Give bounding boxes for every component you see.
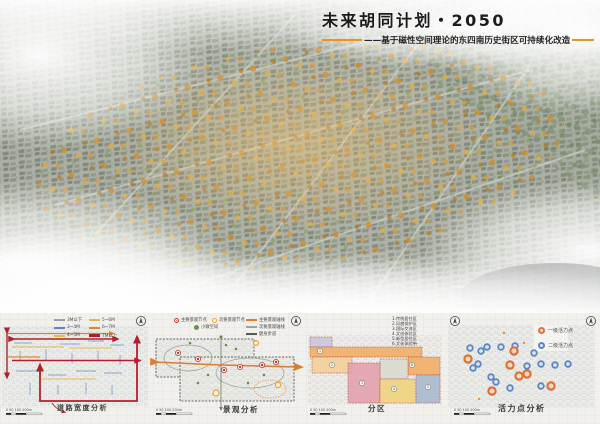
accent-rule-right [572, 39, 594, 41]
svg-text:0 50 100 200m: 0 50 100 200m [6, 408, 33, 412]
legend-main-node: 主要景观节点 [174, 317, 207, 323]
svg-text:0 50 100 200m: 0 50 100 200m [454, 408, 481, 412]
legend-label: 3M以下 [67, 317, 82, 323]
panel-title-vitality: 活力点分析 [498, 403, 546, 414]
swatch-red [89, 334, 100, 337]
legend-label: 一级活力点 [548, 327, 573, 334]
legend-label: 5~6M [102, 318, 115, 323]
swatch-blue [54, 327, 65, 329]
legend-item: 4~5M [54, 333, 82, 339]
scale-bar: 0 50 100 200m [310, 408, 346, 415]
secondary-vitality-icon [538, 342, 545, 349]
micro-space-icon [194, 325, 199, 330]
svg-text:4: 4 [393, 387, 395, 391]
legend-label: 6~7M [102, 325, 115, 330]
title-block: 未来胡同计划・2050 ——基于磁性空间理论的东四南历史街区可持续化改造 [322, 7, 594, 46]
legend-fitness-trail: 健身步道 [246, 331, 276, 337]
svg-text:6: 6 [411, 363, 413, 367]
panel-vitality: 0 50 100 200m 一级活力点 [446, 313, 600, 424]
svg-text:0 50 100 200m: 0 50 100 200m [156, 408, 183, 412]
legend-micro-space: 小微空间 [194, 324, 218, 330]
main-axis-swatch [246, 319, 257, 321]
accent-rule-left [322, 39, 362, 41]
scale-bar: 0 50 100 200m [156, 408, 192, 415]
north-arrow-icon [450, 316, 459, 325]
legend-secondary-vitality: 二级活力点 [538, 342, 573, 349]
secondary-node-icon [212, 318, 217, 323]
primary-vitality-icon [538, 327, 545, 334]
legend-main-axis: 主要景观轴线 [246, 317, 285, 323]
zoning-legend: 1.传统居住区 2.风貌保护区 3.国际交流区 4.文创体验区 5.新型居住区 … [392, 316, 417, 346]
svg-text:0 50 100 200m: 0 50 100 200m [310, 408, 337, 412]
aerial-render-image [0, 0, 600, 314]
legend-label: 4~5M [67, 333, 80, 338]
legend-label: 主要景观轴线 [259, 317, 285, 323]
birdseye-caption: 鸟瞰图 [552, 294, 585, 307]
svg-text:2: 2 [331, 363, 333, 367]
legend-label: 主要景观节点 [181, 317, 207, 323]
main-node-icon [174, 318, 179, 323]
panel-landscape: 0 50 100 200m 主要景观节点 次要景观节点 [150, 313, 304, 424]
panel-title-road-width: 道路宽度分析 [57, 403, 108, 413]
north-arrow-icon [136, 316, 145, 325]
legend-label: 二级活力点 [548, 342, 573, 349]
legend-label: 次要景观节点 [219, 317, 245, 323]
legend-label: 次要景观轴线 [259, 324, 285, 330]
svg-text:1: 1 [319, 349, 321, 353]
page-title: 未来胡同计划・2050 [322, 7, 594, 31]
analysis-strip: 0 50 100 200m 3M以下 3~4M 4~5M 5~6M 6~7M 7… [0, 313, 600, 424]
legend-item: 3~4M [54, 325, 82, 330]
road-width-legend: 3M以下 3~4M 4~5M 5~6M 6~7M 7M以上 [54, 317, 117, 339]
legend-label: 健身步道 [259, 331, 276, 337]
svg-text:3: 3 [361, 381, 363, 385]
legend-secondary-node: 次要景观节点 [212, 317, 245, 323]
panel-title-landscape: 景观分析 [223, 404, 259, 415]
swatch-orange [89, 327, 100, 329]
legend-label: 6.文化体验带 [392, 341, 417, 346]
aerial-render [0, 0, 600, 314]
fitness-trail-swatch [246, 333, 257, 335]
panel-zoning: 1 2 3 4 5 6 0 50 100 200m 1.传统居住区 2.风 [304, 313, 446, 424]
scale-bar: 0 50 100 200m [454, 408, 490, 415]
secondary-axis-swatch [246, 326, 257, 328]
panel-road-width: 0 50 100 200m 3M以下 3~4M 4~5M 5~6M 6~7M 7… [0, 313, 150, 424]
swatch-yellow [54, 335, 65, 337]
legend-secondary-axis: 次要景观轴线 [246, 324, 285, 330]
legend-label: 7M以上 [102, 333, 117, 339]
svg-text:5: 5 [427, 385, 429, 389]
legend-label: 3~4M [67, 325, 80, 330]
panel-title-zoning: 分区 [368, 403, 386, 414]
page-subtitle: ——基于磁性空间理论的东四南历史街区可持续化改造 [364, 34, 570, 46]
subtitle-row: ——基于磁性空间理论的东四南历史街区可持续化改造 [322, 34, 594, 46]
legend-item: 7M以上 [89, 333, 117, 339]
legend-item: 3M以下 [54, 317, 82, 323]
legend-label: 小微空间 [201, 324, 218, 330]
legend-primary-vitality: 一级活力点 [538, 327, 573, 334]
swatch-gray [54, 319, 65, 321]
legend-item: 6~7M [89, 325, 117, 330]
north-arrow-icon [586, 316, 595, 325]
legend-item: 5~6M [89, 317, 117, 323]
swatch-light-orange [89, 319, 100, 321]
presentation-board: 未来胡同计划・2050 ——基于磁性空间理论的东四南历史街区可持续化改造 鸟瞰图 [0, 0, 600, 424]
north-arrow-icon [291, 316, 300, 325]
scale-bar: 0 50 100 200m [6, 408, 42, 415]
